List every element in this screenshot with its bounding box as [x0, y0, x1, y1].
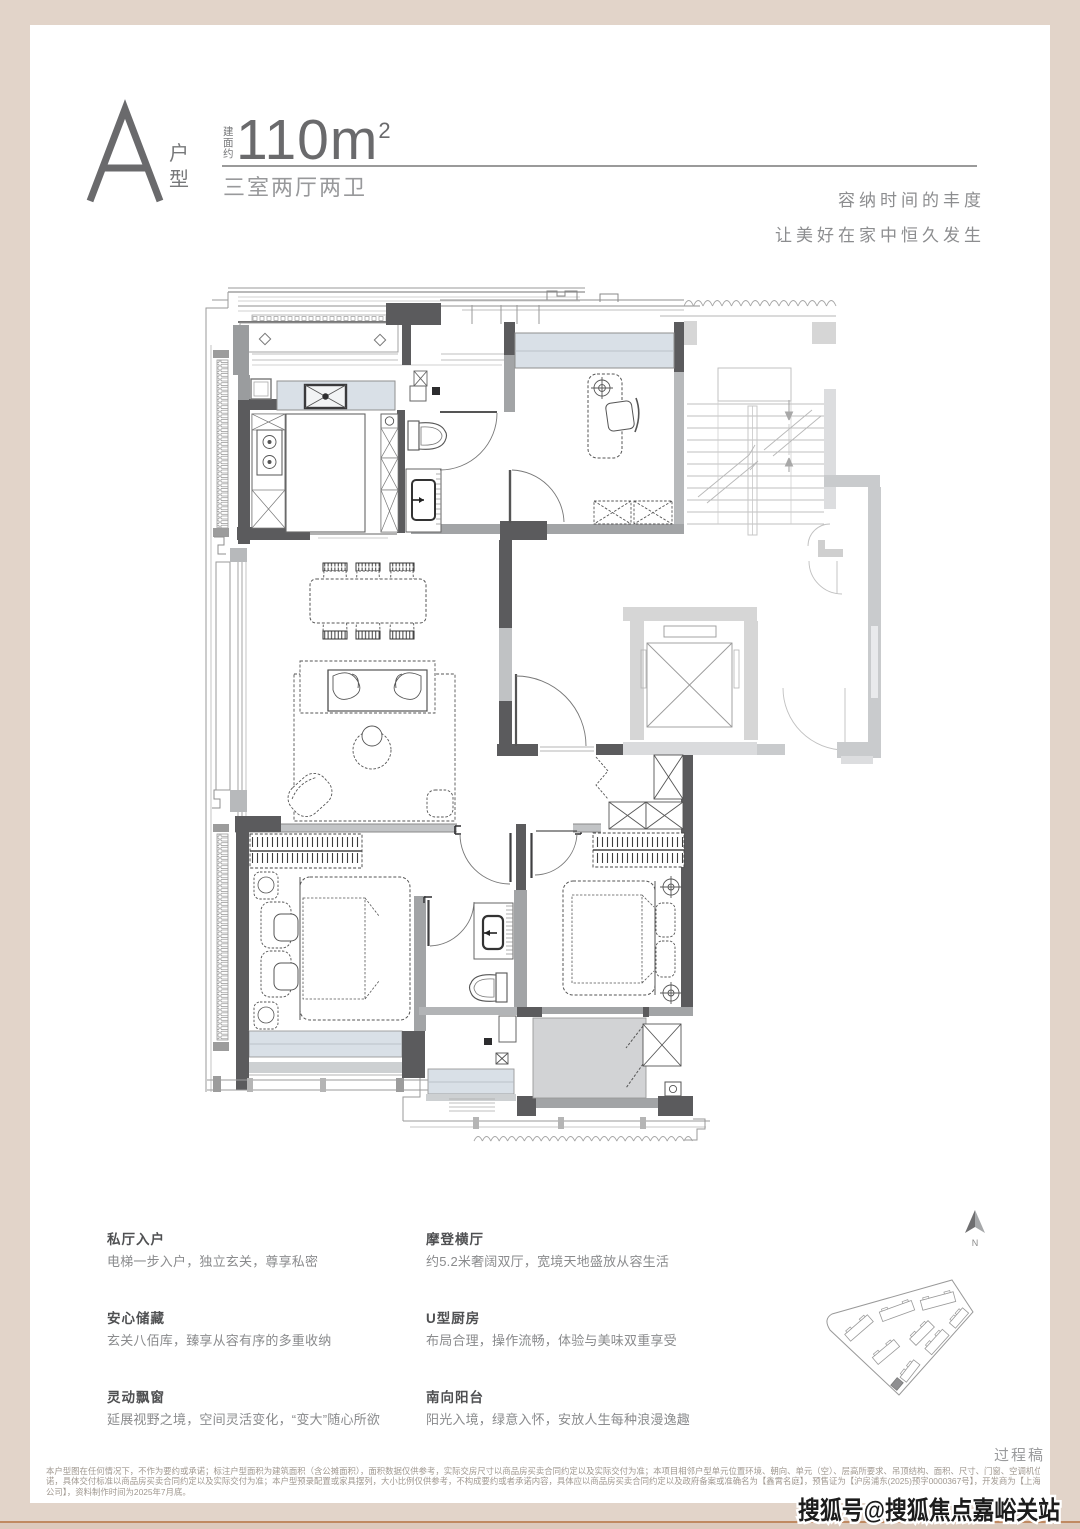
svg-text:搜狐号@搜狐焦点嘉峪关站: 搜狐号@搜狐焦点嘉峪关站 — [798, 1496, 1060, 1525]
svg-text:N: N — [972, 1238, 979, 1248]
